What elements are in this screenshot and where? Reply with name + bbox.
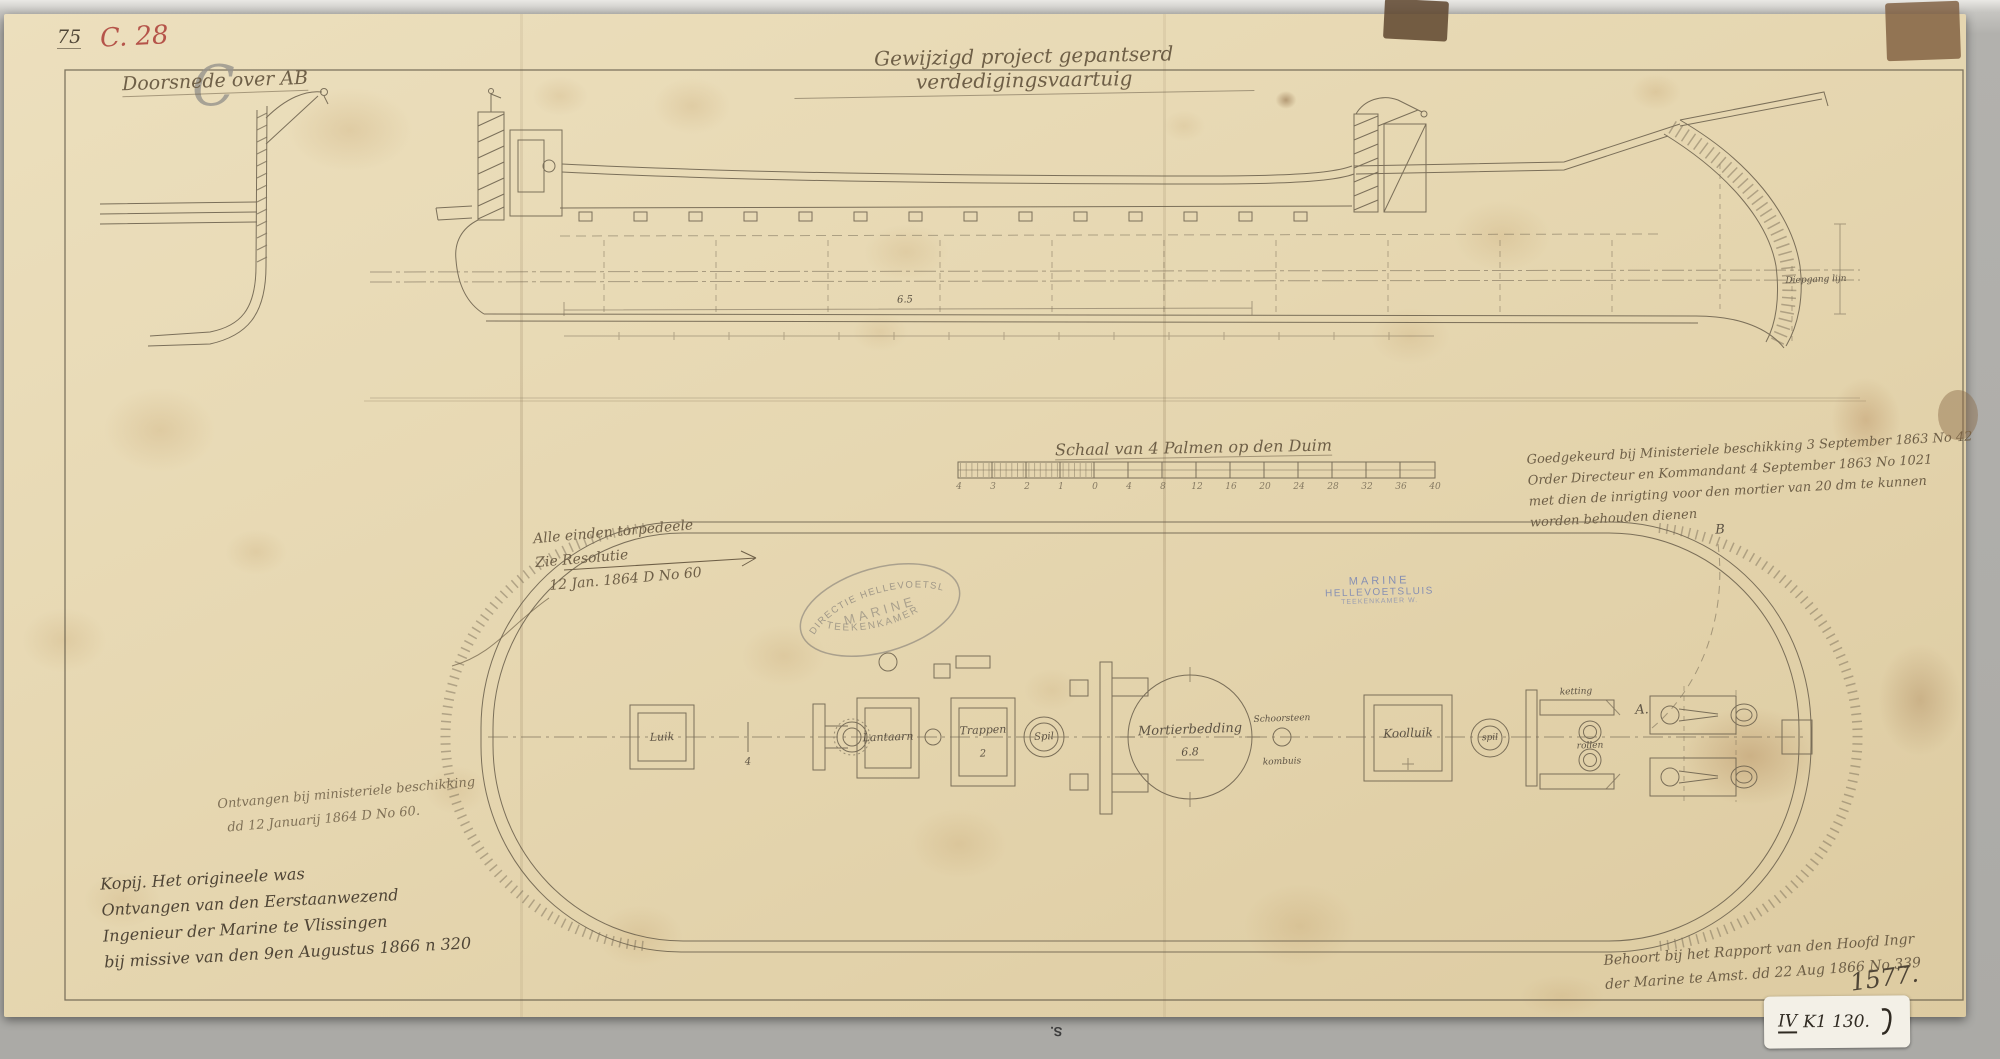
scale-tick: 40	[1427, 482, 1443, 492]
label-spil-1: Spil	[1034, 731, 1054, 743]
corner-code-red-pencil: C. 28	[99, 20, 169, 54]
scale-tick: 28	[1325, 482, 1341, 492]
tape-mark-right-edge	[1938, 390, 1978, 440]
label-trappen: Trappen	[959, 723, 1006, 738]
scale-tick: 2	[1019, 482, 1035, 492]
copy-note: Kopij. Het origineele was Ontvangen van …	[100, 852, 472, 975]
scale-tick: 24	[1291, 482, 1307, 492]
cross-section-drawing	[100, 89, 328, 347]
label-luik: Luik	[649, 730, 674, 744]
resolution-note: Alle einden torpedeele Zie Resolutie 12 …	[532, 513, 702, 599]
tape-mark-top-right	[1885, 1, 1961, 62]
scale-tick: 3	[985, 482, 1001, 492]
scale-tick: 4	[951, 482, 967, 492]
label-spil-2: spil	[1482, 733, 1498, 744]
archive-label-rest: K1 130.	[1803, 1012, 1870, 1033]
corner-number: 75	[57, 26, 81, 49]
label-ketting: ketting	[1560, 686, 1593, 697]
scale-tick: 20	[1257, 482, 1273, 492]
blue-stamp: MARINE HELLEVOETSLUIS TEEKENKAMER W.	[1325, 574, 1435, 607]
scale-tick: 4	[1121, 482, 1137, 492]
label-length-dim: 6.5	[897, 294, 913, 306]
paper-sheet: 75 C C. 28 Doorsnede over AB Gewijzigd p…	[4, 14, 1966, 1017]
label-tick4: 4	[745, 756, 752, 767]
label-mortierbedding-dim: 6.8	[1181, 745, 1199, 759]
scanned-drawing-page: 75 C C. 28 Doorsnede over AB Gewijzigd p…	[0, 0, 2000, 1059]
scale-tick: 36	[1393, 482, 1409, 492]
edge-mark: S.	[1050, 1024, 1063, 1040]
drawing-title: Gewijzigd project gepantserd verdediging…	[794, 40, 1255, 99]
label-trappen-number: 2	[980, 748, 987, 759]
tape-mark-top-center	[1383, 0, 1449, 42]
label-rollen: rollen	[1577, 741, 1604, 752]
marker-a: A.	[1635, 702, 1649, 717]
scale-tick: 0	[1087, 482, 1103, 492]
scale-tick: 8	[1155, 482, 1171, 492]
label-koolluik: Koolluik	[1383, 725, 1433, 741]
scale-tick: 16	[1223, 482, 1239, 492]
label-schoorsteen: Schoorsteen	[1253, 713, 1310, 725]
scale-tick: 12	[1189, 482, 1205, 492]
scale-bar	[958, 462, 1435, 478]
pen-squiggle	[1878, 1005, 1896, 1037]
archive-sticker: IV K1 130.	[1764, 995, 1910, 1048]
side-elevation-drawing	[370, 89, 1860, 349]
scale-tick-labels: 4 3 2 1 0 4 8 12 16 20 24 28 32 36 40	[951, 482, 1443, 492]
label-lantaarn: Lantaarn	[862, 730, 913, 745]
label-kombuis: kombuis	[1263, 756, 1302, 767]
label-waterline-note: Diepgang lijn	[1785, 274, 1846, 286]
scale-tick: 1	[1053, 482, 1069, 492]
scale-tick: 32	[1359, 482, 1375, 492]
archive-label-roman: IV	[1778, 1011, 1797, 1033]
marker-b: B	[1715, 522, 1725, 537]
